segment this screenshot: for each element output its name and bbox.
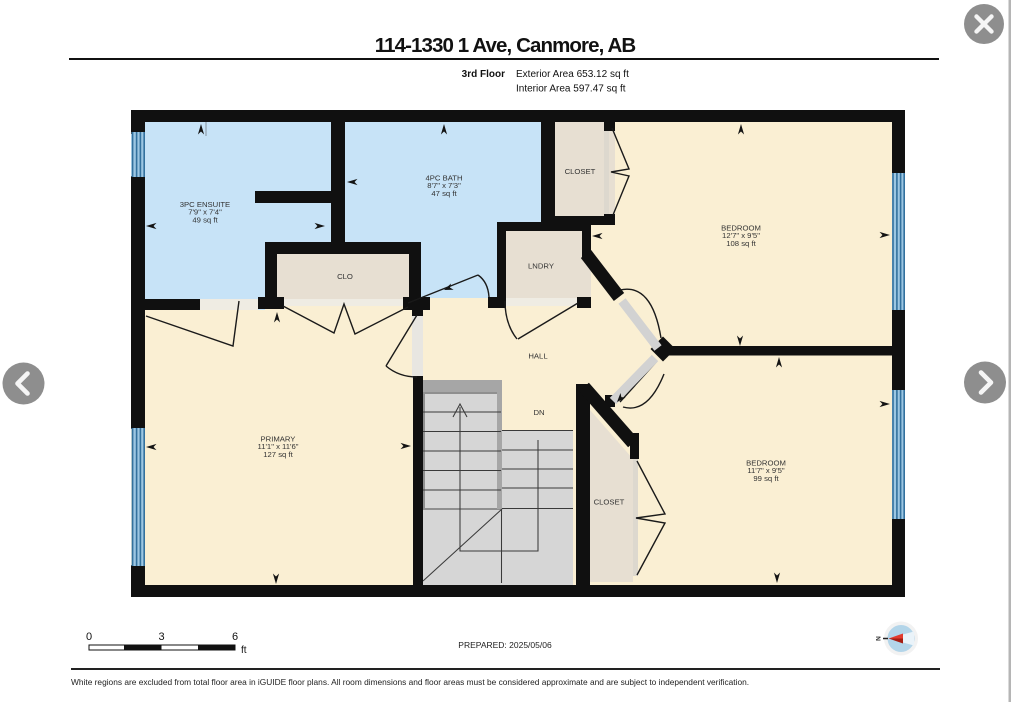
- svg-text:CLOSET: CLOSET: [594, 498, 625, 507]
- svg-text:Interior Area 597.47 sq ft: Interior Area 597.47 sq ft: [516, 84, 626, 95]
- svg-text:108 sq ft: 108 sq ft: [726, 239, 756, 248]
- svg-text:Exterior Area 653.12 sq ft: Exterior Area 653.12 sq ft: [516, 69, 629, 80]
- svg-text:114-1330 1 Ave, Canmore, AB: 114-1330 1 Ave, Canmore, AB: [375, 34, 636, 57]
- svg-text:PREPARED: 2025/05/06: PREPARED: 2025/05/06: [458, 640, 552, 650]
- svg-text:3rd Floor: 3rd Floor: [462, 69, 505, 80]
- svg-text:LNDRY: LNDRY: [528, 262, 554, 271]
- svg-text:CLOSET: CLOSET: [565, 167, 596, 176]
- svg-text:6: 6: [232, 631, 238, 643]
- svg-text:N: N: [876, 636, 883, 641]
- svg-text:0: 0: [86, 631, 92, 643]
- svg-text:DN: DN: [533, 408, 544, 417]
- svg-text:49 sq ft: 49 sq ft: [192, 215, 218, 224]
- svg-text:127 sq ft: 127 sq ft: [263, 450, 293, 459]
- svg-text:ft: ft: [241, 645, 247, 656]
- svg-text:White regions are excluded fro: White regions are excluded from total fl…: [71, 677, 749, 687]
- svg-text:99 sq ft: 99 sq ft: [753, 474, 779, 483]
- svg-text:CLO: CLO: [337, 272, 353, 281]
- svg-text:3: 3: [158, 631, 164, 643]
- svg-text:47 sq ft: 47 sq ft: [431, 189, 457, 198]
- svg-text:HALL: HALL: [528, 352, 548, 361]
